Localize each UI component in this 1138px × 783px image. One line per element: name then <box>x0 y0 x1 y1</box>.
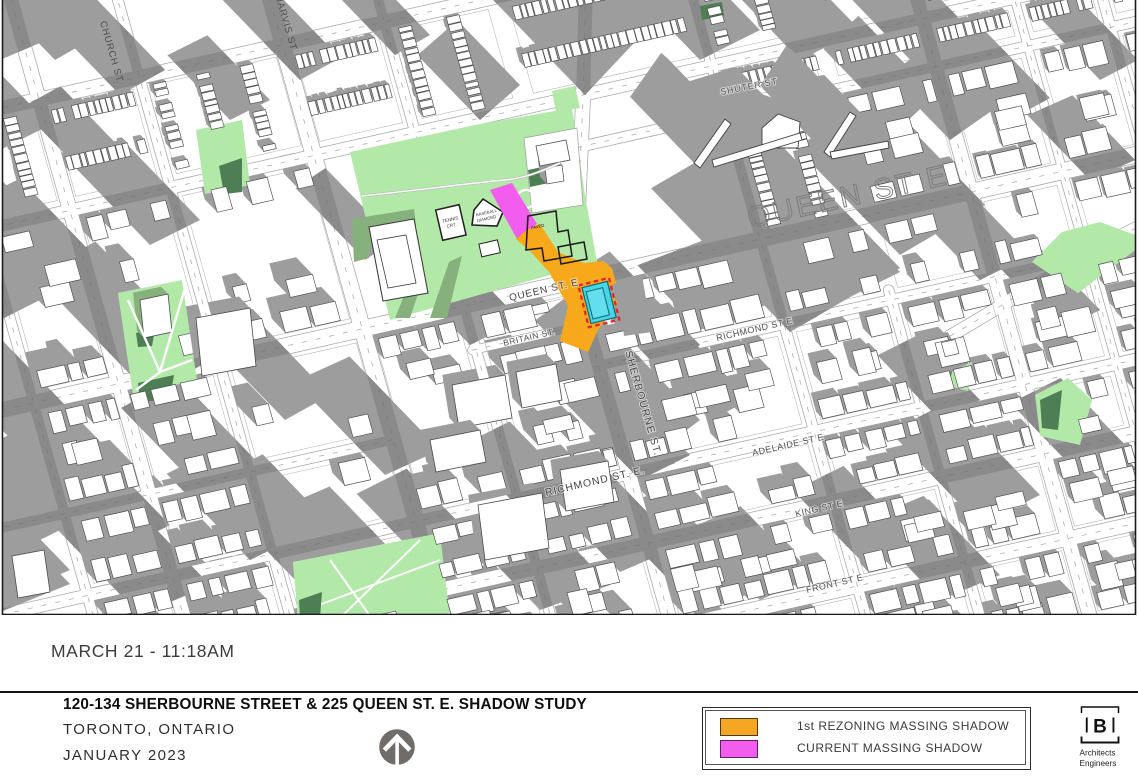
svg-text:B: B <box>1093 717 1107 738</box>
svg-text:Engineers: Engineers <box>1080 759 1117 768</box>
svg-text:Architects: Architects <box>1080 749 1116 758</box>
